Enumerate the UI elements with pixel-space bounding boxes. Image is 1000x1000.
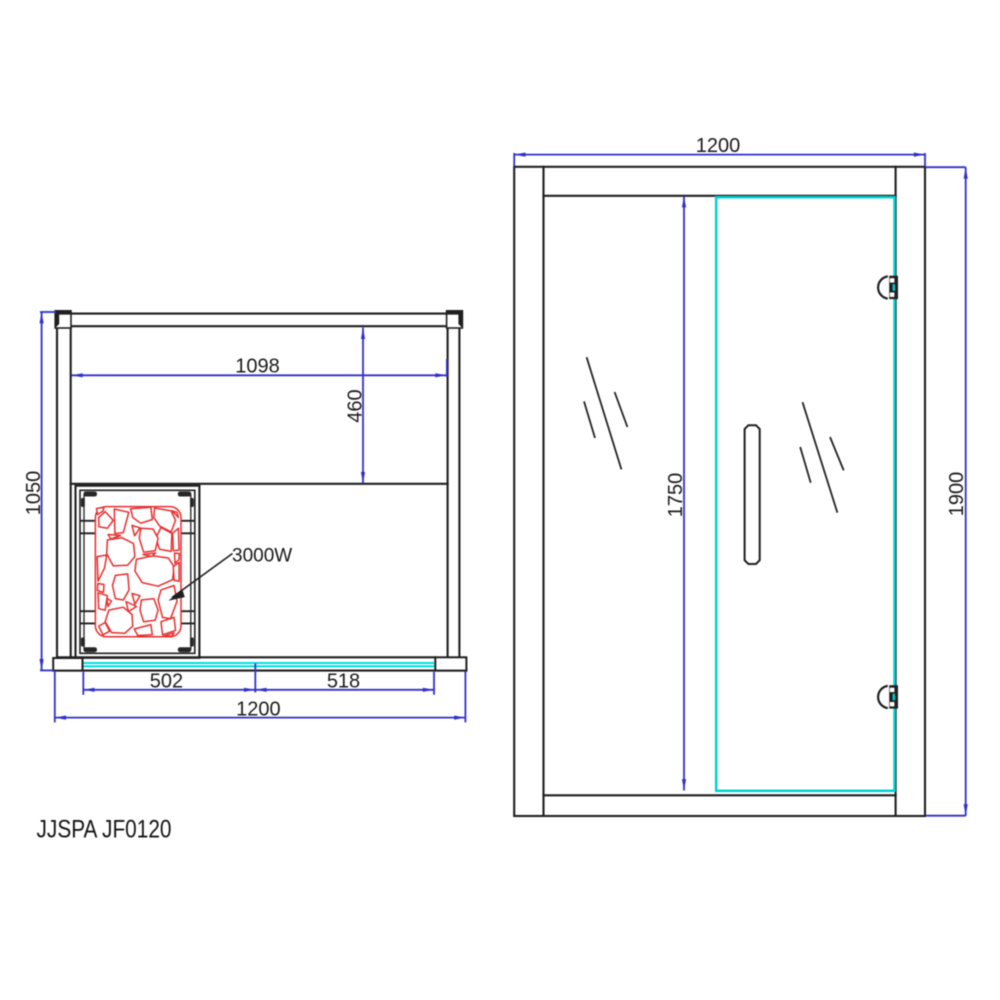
svg-text:3000W: 3000W — [232, 546, 292, 567]
svg-text:1050: 1050 — [23, 471, 45, 516]
svg-text:JJSPA JF0120: JJSPA JF0120 — [37, 816, 172, 844]
svg-text:502: 502 — [150, 671, 183, 693]
svg-text:1750: 1750 — [665, 473, 687, 518]
svg-text:518: 518 — [327, 671, 360, 693]
svg-text:1200: 1200 — [696, 135, 741, 157]
svg-text:460: 460 — [345, 389, 367, 422]
svg-text:1900: 1900 — [946, 472, 968, 517]
svg-text:1098: 1098 — [235, 356, 280, 378]
svg-text:1200: 1200 — [236, 698, 281, 720]
